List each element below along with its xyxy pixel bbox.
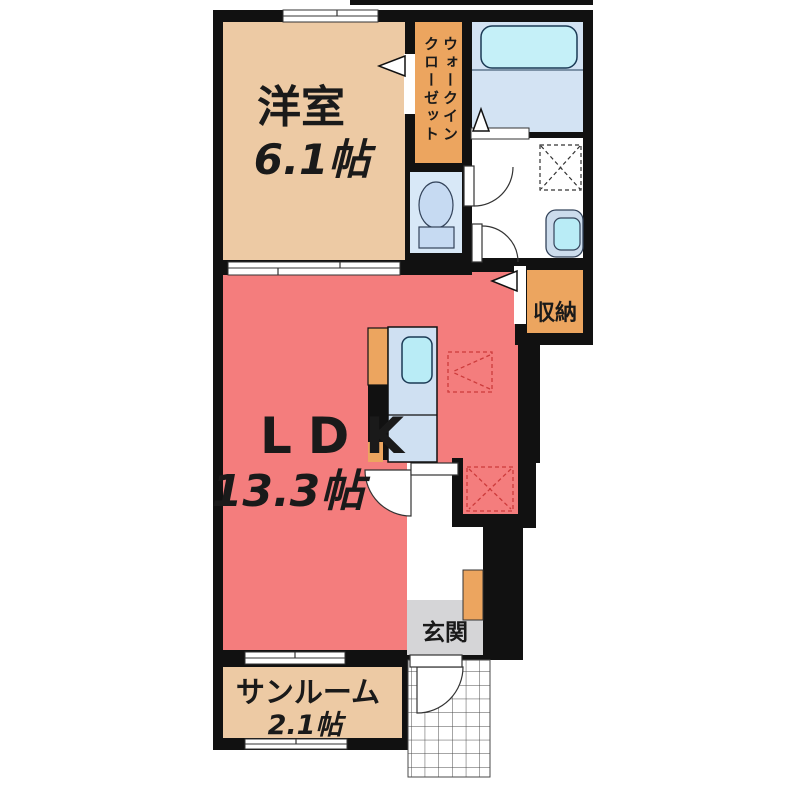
sunroom-label: サンルーム (236, 675, 380, 709)
storage-label: 収納 (533, 300, 577, 326)
kitchen-sink (402, 337, 432, 383)
wall-left (213, 10, 223, 750)
wic-label-line2: クローゼット (422, 36, 440, 144)
window-top (283, 10, 378, 22)
shoe-cabinet (463, 570, 483, 620)
wall-wic-right (462, 22, 472, 163)
sliding-partition (228, 262, 400, 275)
wall-top (213, 10, 593, 22)
bathtub (481, 26, 577, 68)
toilet-room (410, 172, 462, 253)
window-sunroom-top (245, 652, 345, 664)
wall-entry-right (483, 520, 523, 660)
kitchen-cabinet (368, 328, 388, 385)
bathroom (472, 22, 583, 132)
western-room-label: 洋室 (257, 82, 345, 133)
toilet-bowl (419, 182, 453, 228)
sunroom-size: 2.1帖 (268, 710, 347, 741)
toilet-tank (419, 227, 454, 248)
entrance-label: 玄関 (422, 619, 468, 646)
ldk-size: 13.3帖 (212, 466, 372, 517)
western-room-size: 6.1帖 (254, 135, 376, 184)
top-edge-wall-fragment (350, 0, 593, 5)
floor-plan: 洋室 6.1帖 ウォークイン クローゼット LDK 13.3帖 収納 玄関 サン… (0, 0, 800, 784)
wall-ldk-right (518, 333, 540, 463)
washstand-basin (554, 218, 580, 250)
ldk-label: LDK (260, 407, 420, 465)
wic-label-line1: ウォークイン (441, 36, 459, 144)
washstand (546, 210, 583, 257)
